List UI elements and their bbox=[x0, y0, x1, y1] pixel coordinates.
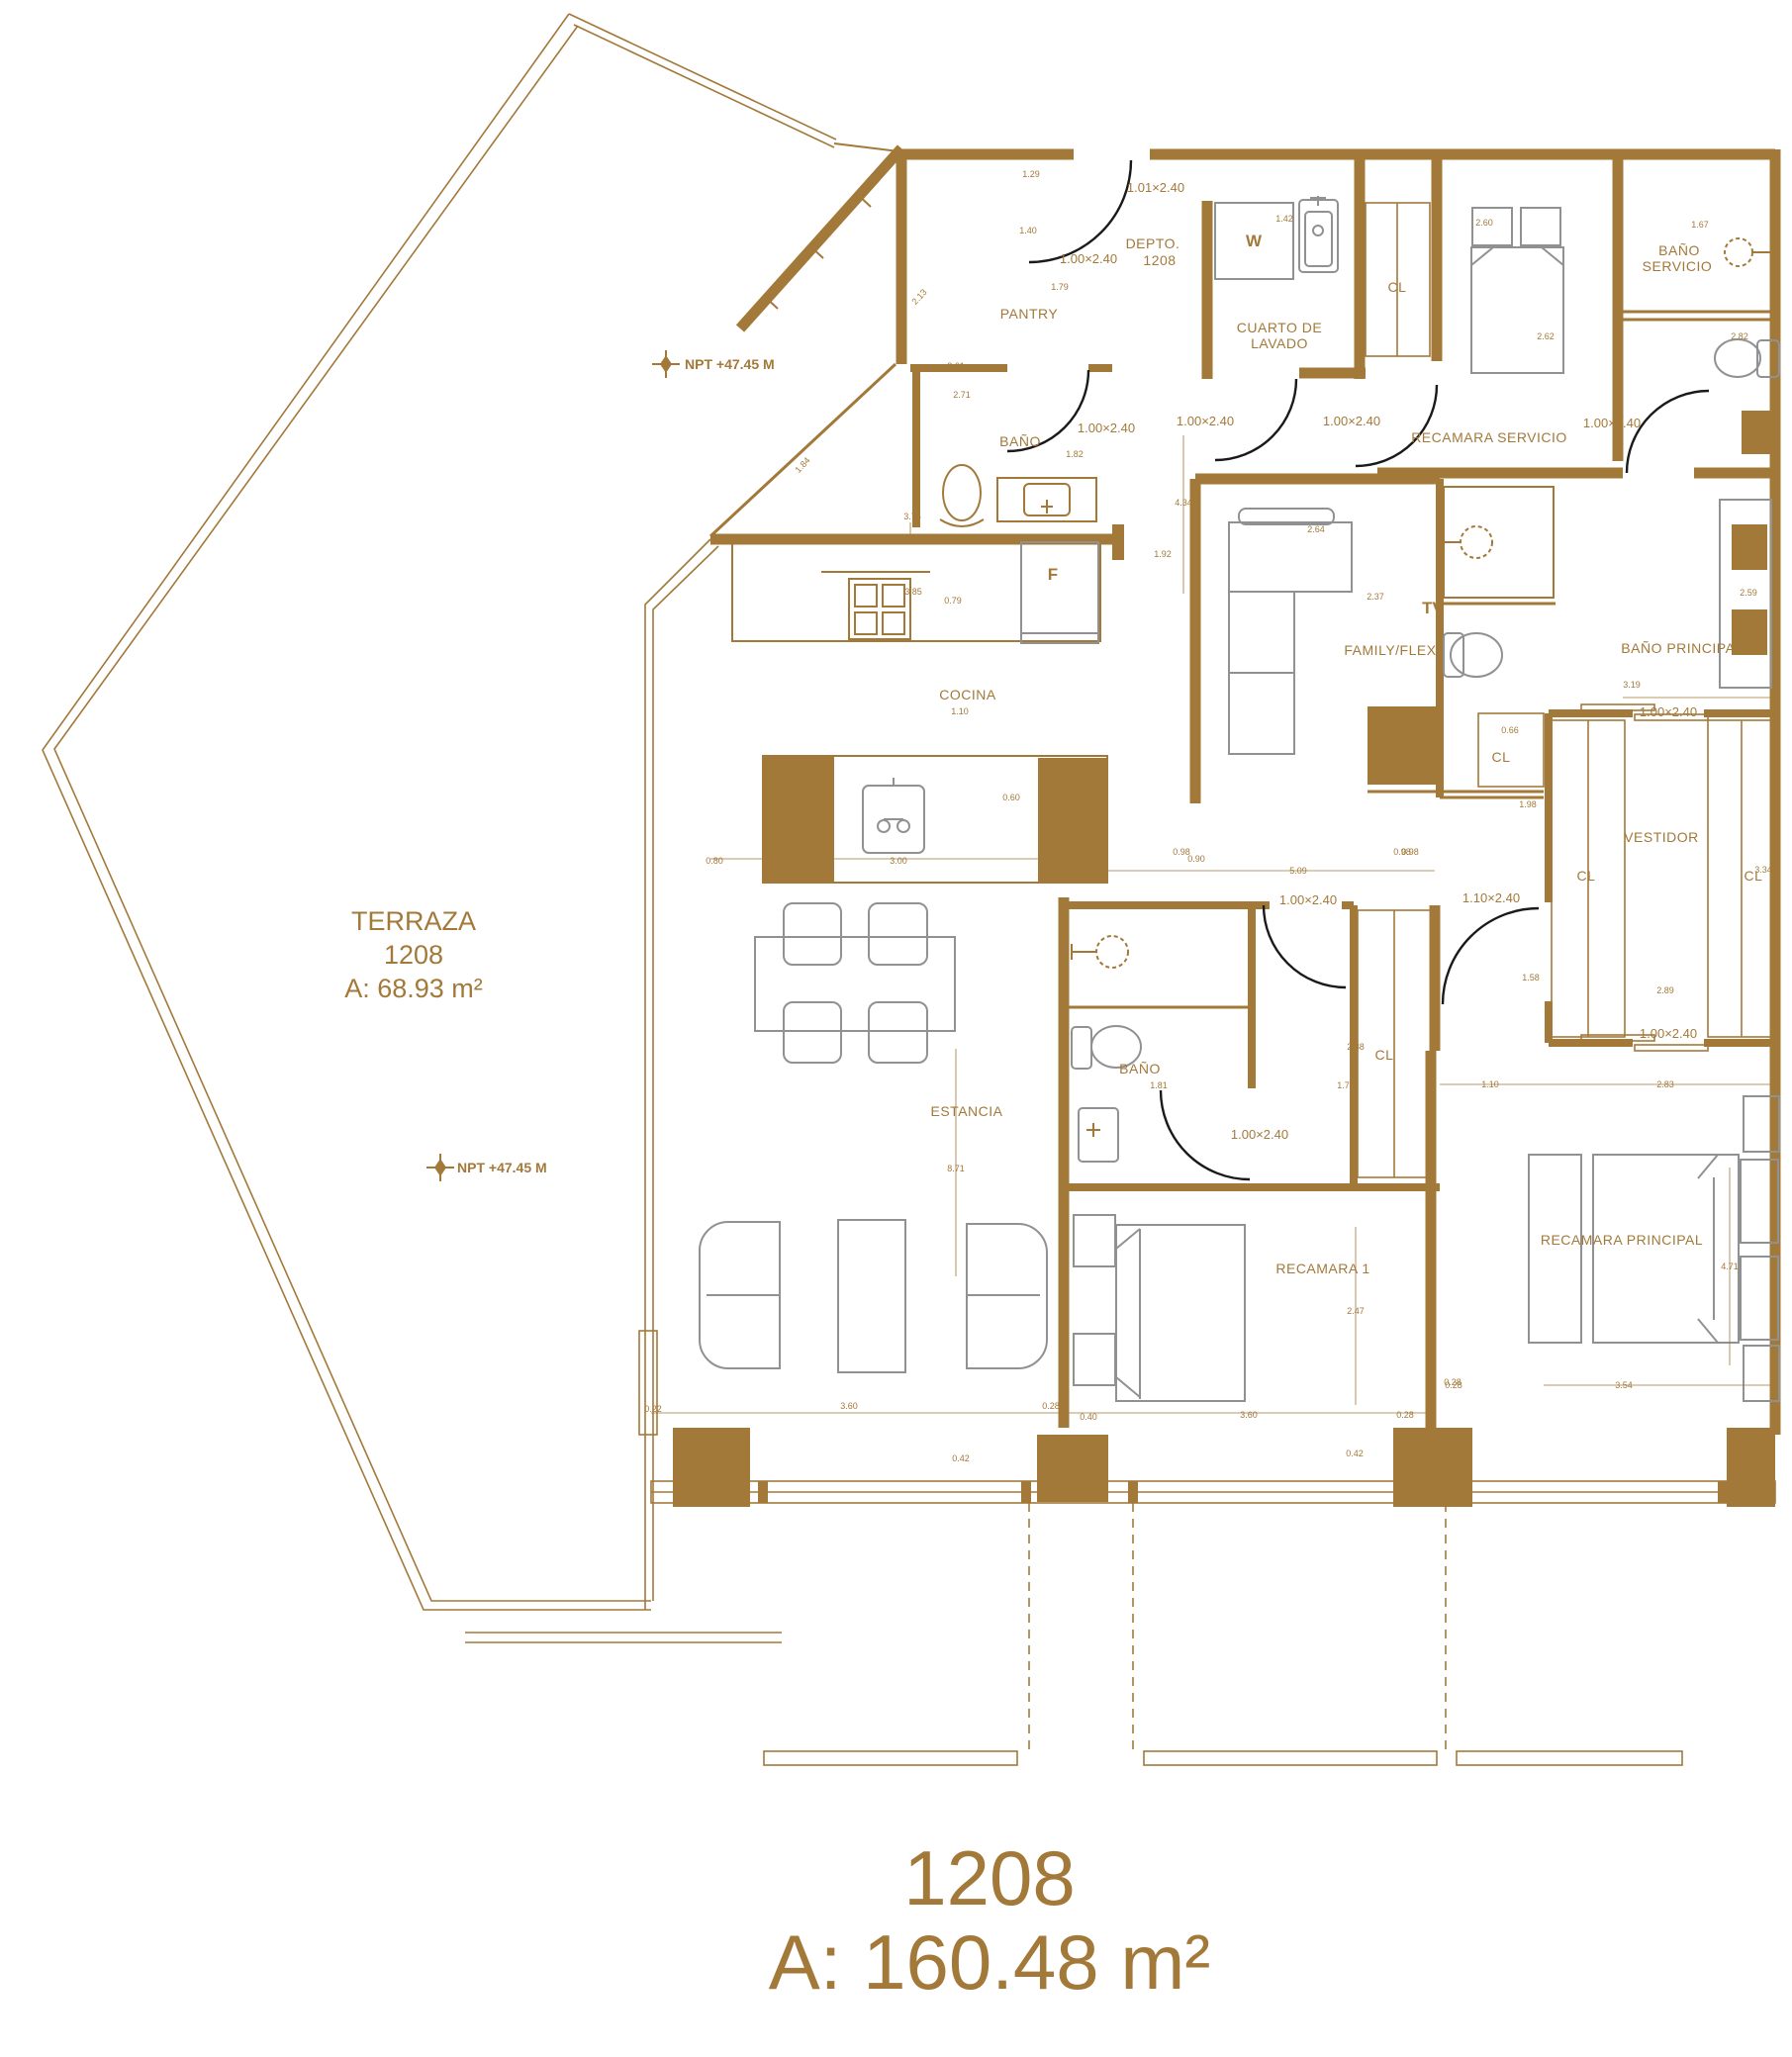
door-label: 1.10×2.40 bbox=[1462, 890, 1520, 905]
dim: 1.98 bbox=[1519, 799, 1537, 809]
dim: 0.66 bbox=[1501, 725, 1519, 735]
dining-table bbox=[755, 937, 955, 1031]
dim: 1.58 bbox=[1522, 973, 1540, 982]
dim: 1.10 bbox=[1481, 1079, 1499, 1089]
chair bbox=[869, 903, 927, 965]
shower-head-icon bbox=[1096, 936, 1128, 968]
dim: 3.54 bbox=[1615, 1380, 1633, 1390]
door-label: 1.00×2.40 bbox=[1583, 416, 1641, 430]
dim: 0.79 bbox=[944, 596, 962, 606]
dim: 2.37 bbox=[1367, 592, 1384, 602]
room-washer: W bbox=[1246, 232, 1263, 250]
npt-label: NPT +47.45 M bbox=[457, 1160, 547, 1175]
room-labels: PANTRY DEPTO. 1208 W CUARTO DE LAVADO CL… bbox=[931, 232, 1763, 1276]
family-sofa bbox=[1229, 522, 1352, 754]
room-family-flex: FAMILY/FLEX bbox=[1344, 642, 1436, 658]
tv-console bbox=[1368, 706, 1437, 785]
dim: 2.62 bbox=[1537, 331, 1555, 341]
room-bano-guest: BAÑO bbox=[999, 433, 1041, 449]
dresser bbox=[1529, 1155, 1581, 1343]
dim: 1.82 bbox=[1066, 449, 1084, 459]
glazing bbox=[639, 539, 1775, 1765]
dim: 0.98 bbox=[1173, 847, 1190, 857]
room-recamara-servicio: RECAMARA SERVICIO bbox=[1411, 429, 1567, 445]
room-tv: TV bbox=[1422, 599, 1444, 617]
room-vestidor: VESTIDOR bbox=[1624, 829, 1699, 845]
dim: 1.40 bbox=[1019, 226, 1037, 235]
balcony-bay-dashes bbox=[1029, 1503, 1446, 1749]
title-unit: 1208 bbox=[903, 1834, 1076, 1921]
floor-plan-page: NPT +47.45 M NPT +47.45 M TERRAZA 1208 A… bbox=[0, 0, 1792, 2057]
refrigerator bbox=[1021, 542, 1098, 643]
chair bbox=[784, 903, 841, 965]
toilet bbox=[943, 465, 981, 520]
room-estancia: ESTANCIA bbox=[931, 1103, 1003, 1119]
cabinet bbox=[1742, 411, 1775, 454]
dim: 2.59 bbox=[1740, 588, 1757, 598]
door-label: 1.00×2.40 bbox=[1078, 421, 1135, 435]
toilet bbox=[1451, 633, 1502, 677]
npt-marker-1: NPT +47.45 M bbox=[652, 350, 775, 378]
vanity-sink bbox=[1079, 1108, 1118, 1162]
bed bbox=[1116, 1225, 1245, 1401]
dim: 2.13 bbox=[909, 287, 928, 307]
dim: 0.60 bbox=[1002, 793, 1020, 802]
room-recamara-principal: RECAMARA PRINCIPAL bbox=[1541, 1232, 1703, 1248]
dim: 2.82 bbox=[1731, 331, 1748, 341]
dimension-lines bbox=[651, 435, 1770, 1413]
dim: 1.29 bbox=[1022, 169, 1040, 179]
floor-plan-drawing: NPT +47.45 M NPT +47.45 M TERRAZA 1208 A… bbox=[0, 0, 1792, 2057]
nightstand bbox=[1074, 1215, 1115, 1266]
dim: 0.28 bbox=[1445, 1380, 1462, 1390]
service-bedroom-door-arc bbox=[1627, 391, 1709, 473]
bedroom1-door-arc bbox=[1264, 905, 1346, 987]
room-lavado-2: LAVADO bbox=[1251, 335, 1308, 351]
shower-head-icon bbox=[1461, 526, 1492, 558]
dim: 0.98 bbox=[1393, 847, 1411, 857]
dim: 0.90 bbox=[1187, 854, 1205, 864]
nightstand bbox=[1074, 1334, 1115, 1385]
dim: 0.22 bbox=[644, 1404, 662, 1414]
room-depto: DEPTO. bbox=[1126, 235, 1180, 251]
room-bano-servicio-2: SERVICIO bbox=[1643, 258, 1713, 274]
column bbox=[1727, 1428, 1775, 1507]
room-cl-1: CL bbox=[1375, 1047, 1394, 1063]
door-label: 1.00×2.40 bbox=[1640, 1026, 1697, 1041]
dim: 1.10 bbox=[951, 706, 969, 716]
terrace-area: A: 68.93 m² bbox=[344, 974, 483, 1003]
sink bbox=[1732, 524, 1767, 570]
title-block: 1208 A: 160.48 m² bbox=[769, 1834, 1211, 2006]
door-label: 1.00×2.40 bbox=[1060, 251, 1117, 266]
terrace-name: TERRAZA bbox=[351, 906, 476, 936]
island-cabinet bbox=[763, 756, 834, 883]
dim: 0.60 bbox=[1074, 856, 1091, 866]
balcony-railing bbox=[764, 1751, 1017, 1765]
dim: 1.92 bbox=[1154, 549, 1172, 559]
dim: 0.40 bbox=[1080, 1412, 1097, 1422]
dim: 4.71 bbox=[1721, 1262, 1739, 1271]
dim: 1.81 bbox=[1150, 1080, 1168, 1090]
island-cabinet bbox=[1038, 758, 1107, 883]
dim: 2.64 bbox=[1307, 524, 1325, 534]
terrace-label: TERRAZA 1208 A: 68.93 m² bbox=[344, 906, 483, 1003]
balcony-railing bbox=[1457, 1751, 1682, 1765]
dim: 1.42 bbox=[1275, 214, 1293, 224]
dim: 3.34 bbox=[1754, 865, 1772, 875]
door-label: 1.00×2.40 bbox=[1279, 892, 1337, 907]
dim: 2.89 bbox=[1656, 985, 1674, 995]
room-bano-servicio-1: BAÑO bbox=[1658, 242, 1700, 258]
dim: 3.75 bbox=[903, 512, 921, 521]
door-label: 1.00×2.40 bbox=[1640, 704, 1697, 719]
dim: 2.47 bbox=[1347, 1306, 1365, 1316]
shower-head-icon bbox=[1725, 238, 1752, 266]
hall-door-arc bbox=[1443, 908, 1539, 1004]
room-pantry: PANTRY bbox=[1000, 306, 1059, 322]
dim: 1.79 bbox=[1051, 282, 1069, 292]
dim: 3.85 bbox=[904, 587, 922, 597]
bed bbox=[1593, 1155, 1739, 1343]
door-label: 1.01×2.40 bbox=[1127, 180, 1184, 195]
dim: 4.34 bbox=[1175, 498, 1192, 508]
dim: 0.28 bbox=[1042, 1401, 1060, 1411]
headboard-cabinet bbox=[1521, 208, 1560, 245]
column bbox=[673, 1428, 750, 1507]
dim: 8.71 bbox=[947, 1164, 965, 1173]
stove bbox=[849, 579, 910, 639]
column bbox=[1393, 1428, 1472, 1507]
npt-label: NPT +47.45 M bbox=[685, 356, 775, 372]
room-bano-principal: BAÑO PRINCIPAL bbox=[1621, 640, 1743, 656]
dim: 3.60 bbox=[840, 1401, 858, 1411]
toilet bbox=[1715, 339, 1760, 377]
room-fridge: F bbox=[1048, 565, 1058, 584]
room-lavado-1: CUARTO DE bbox=[1237, 320, 1322, 335]
room-cl-vestidor-1: CL bbox=[1577, 868, 1596, 884]
npt-marker-2: NPT +47.45 M bbox=[426, 1154, 547, 1181]
terrace-unit: 1208 bbox=[384, 940, 443, 970]
dim: 2.88 bbox=[1347, 1042, 1365, 1052]
dim: 5.09 bbox=[1289, 866, 1307, 876]
door-label: 1.00×2.40 bbox=[1231, 1127, 1288, 1142]
dim: 0.28 bbox=[1396, 1410, 1414, 1420]
title-area: A: 160.48 m² bbox=[769, 1918, 1211, 2006]
room-bano-1: BAÑO bbox=[1119, 1061, 1161, 1076]
dim: 0.42 bbox=[1346, 1449, 1364, 1458]
columns bbox=[673, 1428, 1775, 1507]
service-bed bbox=[1471, 247, 1563, 373]
dim: 1.75 bbox=[1337, 1080, 1355, 1090]
room-cl-family: CL bbox=[1492, 749, 1511, 765]
dim: 0.42 bbox=[952, 1453, 970, 1463]
dim: 0.80 bbox=[706, 856, 723, 866]
door-labels: 1.01×2.40 1.00×2.40 1.00×2.40 1.00×2.40 … bbox=[1060, 180, 1697, 1142]
dim: 2.60 bbox=[1475, 218, 1493, 228]
dim: 3.00 bbox=[890, 856, 907, 866]
dim: 2.83 bbox=[1656, 1079, 1674, 1089]
room-cl-service: CL bbox=[1388, 279, 1407, 295]
chair bbox=[869, 1002, 927, 1063]
coffee-table bbox=[838, 1220, 905, 1372]
room-cocina: COCINA bbox=[939, 687, 996, 702]
dim: 2.71 bbox=[953, 390, 971, 400]
balcony-railing bbox=[1144, 1751, 1437, 1765]
column bbox=[1037, 1435, 1108, 1502]
door-label: 1.00×2.40 bbox=[1323, 414, 1380, 428]
entry-door-arc bbox=[1029, 160, 1131, 262]
wall-jamb bbox=[1112, 524, 1124, 560]
door-label: 1.00×2.40 bbox=[1177, 414, 1234, 428]
dim: 1.67 bbox=[1691, 220, 1709, 230]
chair bbox=[784, 1002, 841, 1063]
dim: 2.61 bbox=[947, 361, 965, 371]
dim: 3.60 bbox=[1240, 1410, 1258, 1420]
room-recamara-1: RECAMARA 1 bbox=[1275, 1261, 1369, 1276]
sliding-doors bbox=[1581, 704, 1708, 1051]
room-depto-num: 1208 bbox=[1143, 252, 1176, 268]
dim: 3.19 bbox=[1623, 680, 1641, 690]
